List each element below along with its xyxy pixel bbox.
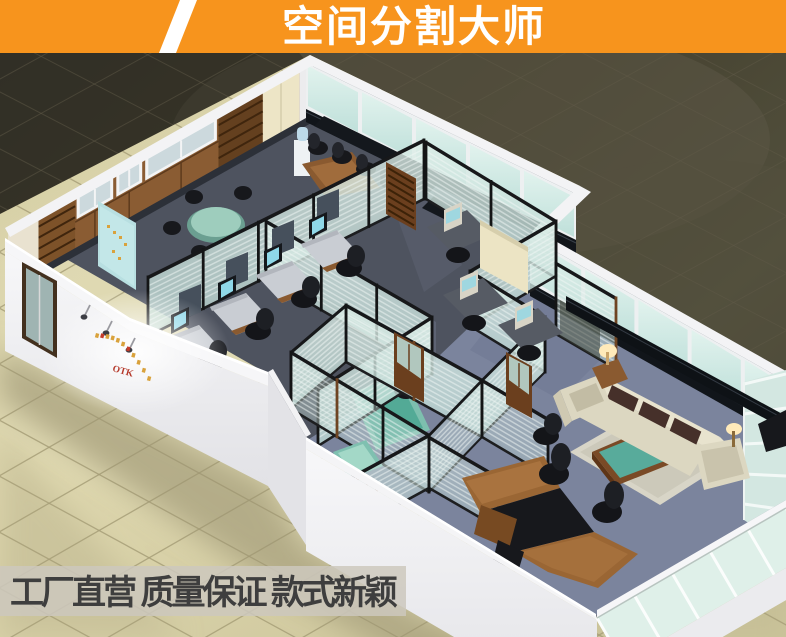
svg-text:工厂直营 质量保证 款式新颖: 工厂直营 质量保证 款式新颖 bbox=[10, 574, 398, 612]
svg-text:空间分割大师: 空间分割大师 bbox=[282, 3, 544, 50]
